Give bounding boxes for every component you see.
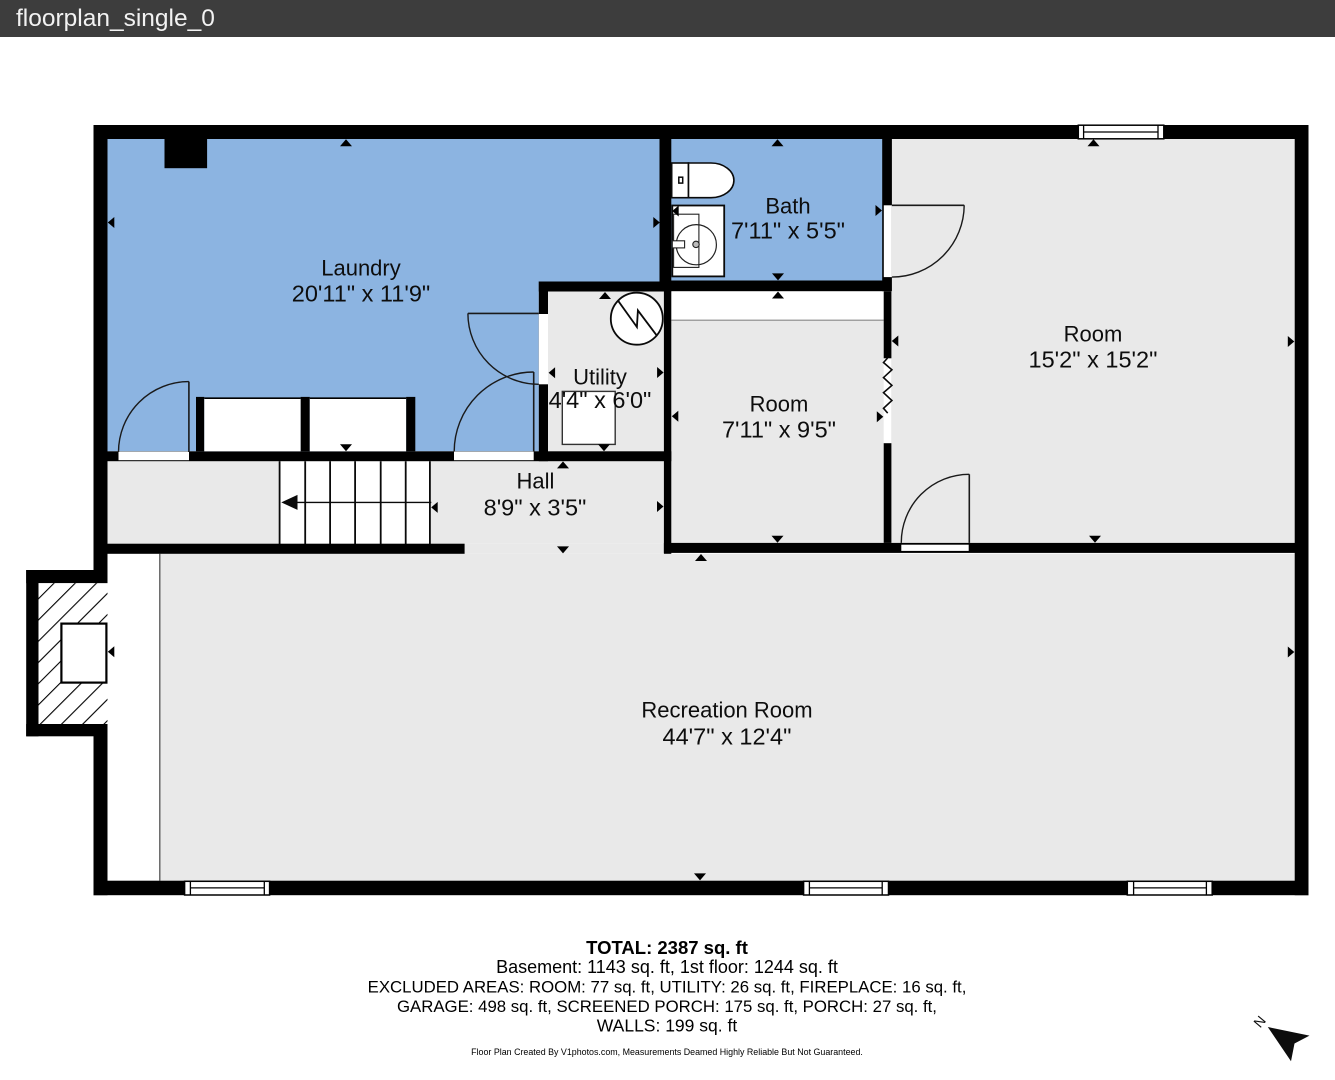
- svg-text:Floor Plan Created By V1photos: Floor Plan Created By V1photos.com, Meas…: [471, 1047, 863, 1057]
- svg-text:Bath: Bath: [765, 194, 810, 219]
- svg-text:EXCLUDED AREAS: ROOM: 77 sq. f: EXCLUDED AREAS: ROOM: 77 sq. ft, UTILITY…: [368, 978, 967, 997]
- svg-text:TOTAL: 2387 sq. ft: TOTAL: 2387 sq. ft: [586, 937, 748, 958]
- svg-text:8'9" x 3'5": 8'9" x 3'5": [484, 495, 587, 521]
- svg-text:Utility: Utility: [573, 365, 627, 390]
- svg-text:N: N: [1250, 1012, 1269, 1030]
- svg-text:7'11" x 5'5": 7'11" x 5'5": [731, 218, 845, 244]
- svg-text:7'11" x 9'5": 7'11" x 9'5": [722, 417, 836, 443]
- svg-text:44'7" x 12'4": 44'7" x 12'4": [663, 724, 792, 750]
- svg-text:15'2" x 15'2": 15'2" x 15'2": [1029, 347, 1158, 373]
- svg-text:Recreation Room: Recreation Room: [641, 698, 812, 723]
- svg-text:Room: Room: [1064, 322, 1123, 347]
- svg-text:Hall: Hall: [517, 469, 555, 494]
- svg-text:Room: Room: [750, 392, 809, 417]
- svg-text:GARAGE: 498 sq. ft, SCREENED P: GARAGE: 498 sq. ft, SCREENED PORCH: 175 …: [397, 997, 937, 1016]
- svg-text:WALLS: 199 sq. ft: WALLS: 199 sq. ft: [597, 1016, 738, 1036]
- svg-text:4'4" x 6'0": 4'4" x 6'0": [549, 387, 652, 413]
- svg-text:Basement: 1143 sq. ft, 1st flo: Basement: 1143 sq. ft, 1st floor: 1244 s…: [496, 957, 838, 977]
- svg-text:20'11" x 11'9": 20'11" x 11'9": [292, 281, 430, 307]
- svg-text:Laundry: Laundry: [321, 256, 401, 281]
